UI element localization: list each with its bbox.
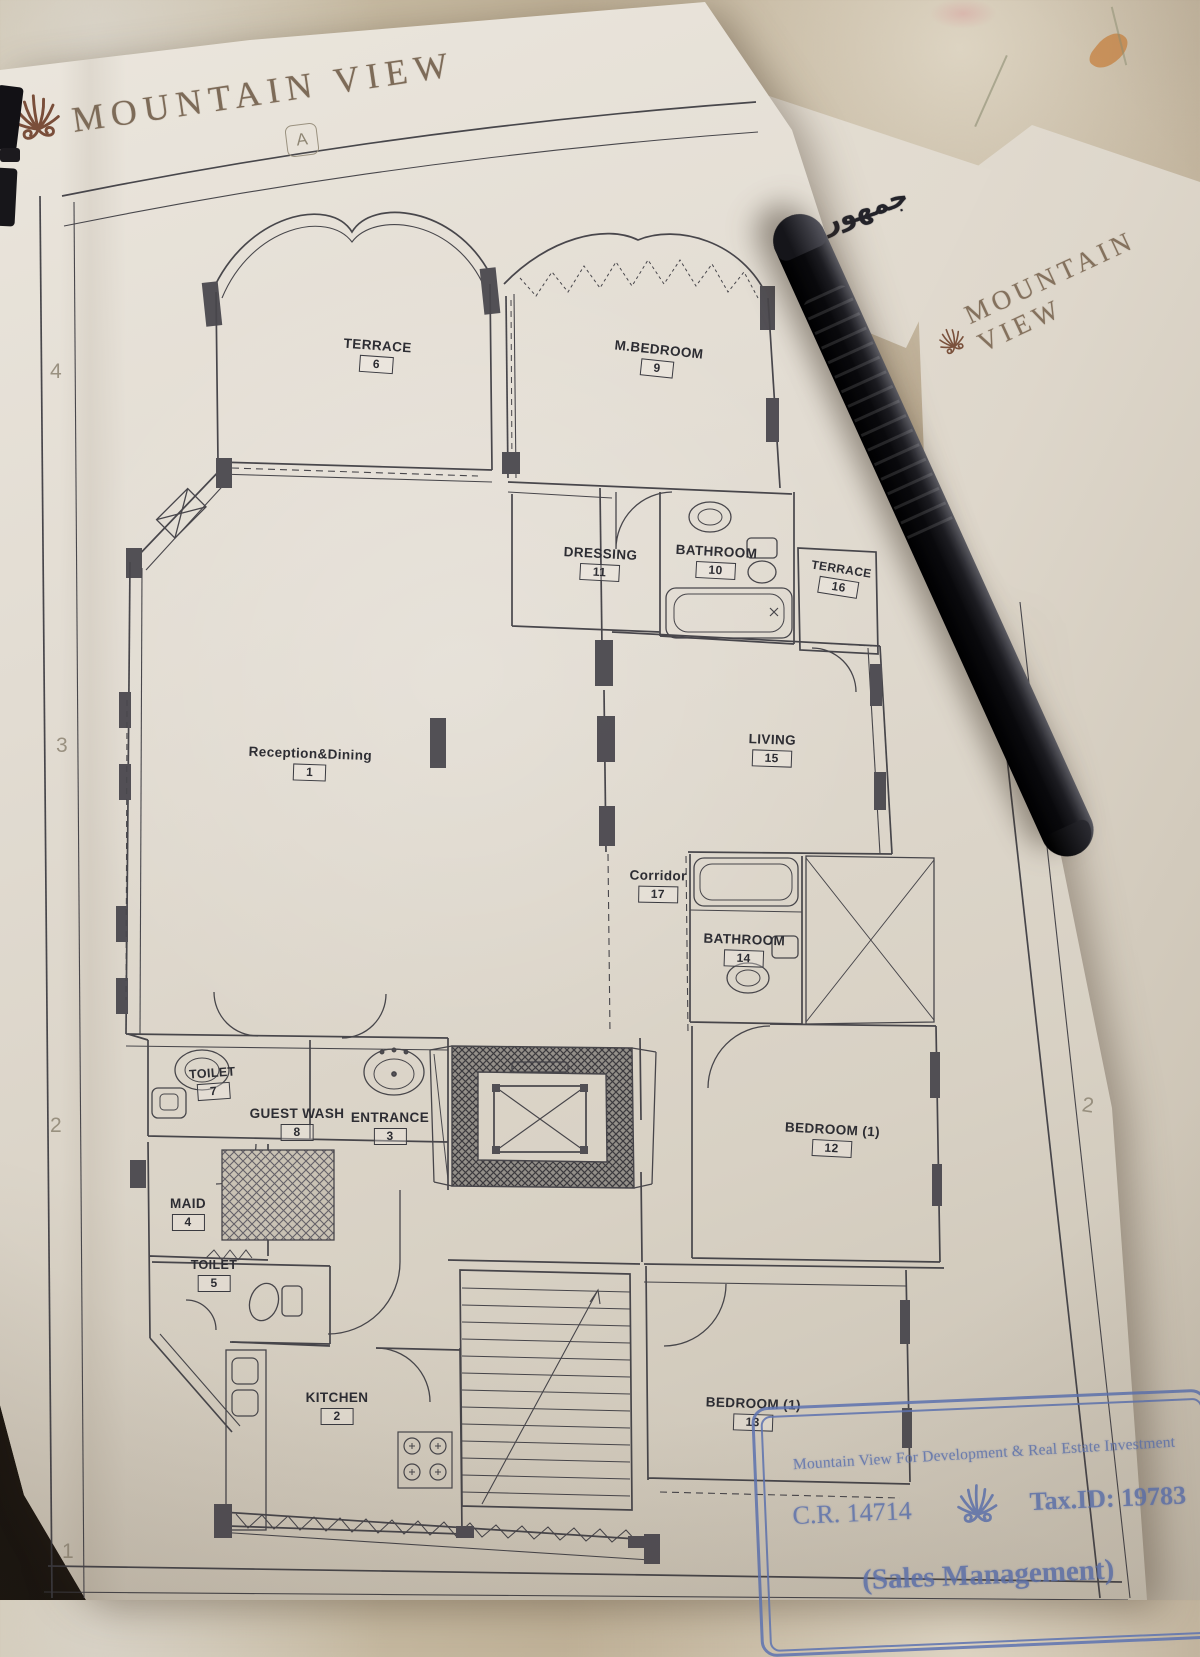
stamp-palmette-icon <box>953 1478 1001 1530</box>
grid-marker-left-1: 1 <box>62 1540 74 1564</box>
stamp-tax-id: Tax.ID: 19783 <box>1029 1481 1187 1518</box>
stamp-department-line: (Sales Management) <box>769 1550 1200 1601</box>
room-label-living-15: LIVING15 <box>748 731 797 768</box>
room-label-entrance-3: ENTRANCE3 <box>351 1110 429 1145</box>
room-label-terrace-6: TERRACE6 <box>342 336 412 376</box>
room-label-maid-4: MAID4 <box>170 1196 206 1231</box>
room-label-kitchen-2: KITCHEN2 <box>306 1390 369 1425</box>
room-label-guest-wash-8: GUEST WASH8 <box>250 1106 345 1141</box>
binder-edge-mark <box>0 167 18 226</box>
stamp-company-line: Mountain View For Development & Real Est… <box>776 1433 1192 1476</box>
grid-marker-left-4: 4 <box>50 360 62 384</box>
room-label-bathroom-14: BATHROOM14 <box>703 931 786 969</box>
room-label-toilet-7: TOILET7 <box>189 1064 238 1101</box>
photo-of-floorplan-brochure: { "brand": { "name": "MOUNTAIN VIEW" }, … <box>0 0 1200 1600</box>
grid-marker-left-3: 3 <box>56 734 68 758</box>
room-label-bedroom-12: BEDROOM (1)12 <box>784 1120 881 1160</box>
room-label-dressing-11: DRESSING11 <box>562 544 637 583</box>
company-stamp: Mountain View For Development & Real Est… <box>751 1389 1200 1657</box>
room-label-reception-dining-1: Reception&Dining1 <box>248 744 373 783</box>
floor-plan-drawing <box>0 0 1200 1600</box>
binder-edge-mark <box>0 148 20 162</box>
grid-marker-a: A <box>284 122 320 158</box>
floor-plan-sheet: MOUNTAIN VIEW A 4 3 2 1 3 2 TERRACE6 M.B… <box>0 0 1200 1600</box>
grid-marker-left-2: 2 <box>50 1114 62 1138</box>
room-label-toilet-5: TOILET5 <box>191 1258 238 1292</box>
room-label-bathroom-10: BATHROOM10 <box>674 542 757 581</box>
stamp-cr-number: C.R. 14714 <box>792 1496 912 1531</box>
room-label-corridor-17: Corridor17 <box>629 868 687 904</box>
